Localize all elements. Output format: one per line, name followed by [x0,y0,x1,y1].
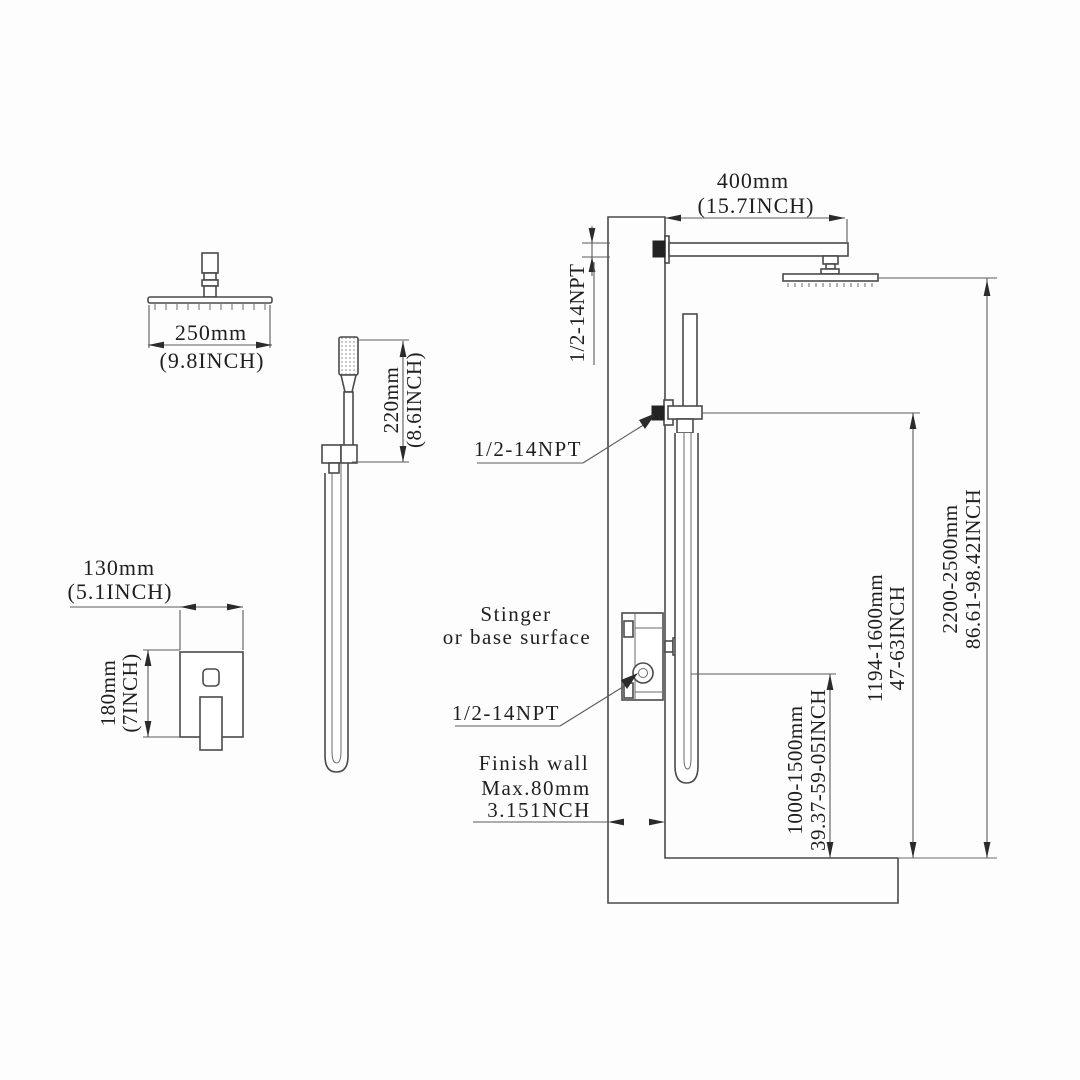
hose-front-inner [332,463,341,763]
head-front-connector-flange [202,280,218,286]
dim-valve-height-front-mm: 180mm [96,660,120,727]
shower-dimension-drawing: 400mm (15.7INCH) 1/2-14NPT 1/2-14NPT 1/2… [0,0,1080,1080]
label-valve-thread-group: 1/2-14NPT [452,673,638,726]
hand-wand-head [339,337,358,375]
dim-arm-inch: (15.7INCH) [698,193,815,218]
hand-wand-side [683,314,697,414]
dim-hand-inch: (8.6INCH) [402,352,426,448]
holder-bracket-side [668,406,702,419]
head-nozzles-side [788,283,872,287]
drawing-svg: 400mm (15.7INCH) 1/2-14NPT 1/2-14NPT 1/2… [0,0,1080,1080]
side-view-section: 400mm (15.7INCH) 1/2-14NPT 1/2-14NPT 1/2… [443,168,997,903]
dim-arm-mm: 400mm [717,168,789,193]
head-front-connector-neck [204,273,216,280]
hose-adapter-side [677,419,693,433]
head-front-plate [148,297,272,303]
label-valve-thread: 1/2-14NPT [452,701,560,725]
finish-wall-line1: Finish wall [479,751,589,775]
arm-inlet-fitting [653,241,665,257]
valve-clip-top [624,621,633,637]
dim-head-install-height: 2200-2500mm 86.61-98.42INCH [878,278,997,858]
hose-nut-front [329,463,339,473]
dim-valve-height-mm: 1000-1500mm [783,705,807,834]
shower-arm [669,243,848,256]
head-front-connector-top [202,253,218,273]
dim-valve-width-inch: (5.1INCH) [68,579,173,604]
hose-front-outer [325,463,348,772]
dim-valve-height-inch: 39.37-59-05INCH [806,689,830,851]
valve-front: 130mm (5.1INCH) 180mm (7INCH) [68,555,243,750]
dim-valve-height-front: 180mm (7INCH) [96,650,180,737]
hand-wand-taper [341,375,356,392]
dim-head-width: 250mm (9.8INCH) [148,305,272,373]
hand-shower-front: 220mm (8.6INCH) [322,337,426,772]
wall-label-line1: Stinger [480,602,551,626]
outlet-fitting [652,406,664,420]
dim-hand-length: 220mm (8.6INCH) [352,340,426,462]
valve-stem [665,641,673,652]
dim-wall-thickness: Finish wall Max.80mm 3.151NCH [473,751,665,825]
dim-head-inch: (9.8INCH) [160,348,265,373]
head-front-connector-taper [204,286,216,297]
head-connector-top [823,256,838,264]
dim-valve-height-front-inch: (7INCH) [118,653,142,732]
dim-valve-width: 130mm (5.1INCH) [68,555,243,650]
dim-head-mm: 250mm [175,320,247,345]
label-arm-thread: 1/2-14NPT [565,264,589,363]
wall-and-floor-section [608,217,898,903]
dim-head-height-inch: 86.61-98.42INCH [961,489,985,649]
dim-head-height-mm: 2200-2500mm [938,504,962,633]
head-front-nozzles [155,304,265,310]
valve-inlet-port [633,663,653,683]
label-wall-surface: Stinger or base surface [443,602,591,649]
dim-arm-length: 400mm (15.7INCH) [665,168,847,242]
dim-hand-mm: 220mm [379,367,403,434]
hose-side-outer [675,433,698,783]
dim-valve-width-mm: 130mm [83,555,155,580]
valve-front-handle [200,697,222,750]
holder-bracket-front [322,445,341,463]
label-outlet-thread: 1/2-14NPT [474,437,582,461]
overhead-shower-side [653,236,878,287]
head-plate-side [783,274,878,281]
hand-wand-handle [344,392,353,446]
holder-cradle-front [341,445,357,463]
dim-valve-install-height: 1000-1500mm 39.37-59-05INCH [691,674,836,858]
overhead-shower-front: 250mm (9.8INCH) [148,253,272,373]
finish-wall-line2: Max.80mm [481,776,590,800]
finish-wall-line3: 3.151NCH [487,798,591,822]
dim-arm-inlet: 1/2-14NPT [565,226,610,365]
wall-label-line2: or base surface [443,625,591,649]
label-outlet-thread-group: 1/2-14NPT [474,413,656,463]
dim-holder-height-inch: 47-63INCH [885,586,909,691]
dim-holder-height-mm: 1194-1600mm [863,574,887,702]
hand-shower-side [652,314,702,783]
